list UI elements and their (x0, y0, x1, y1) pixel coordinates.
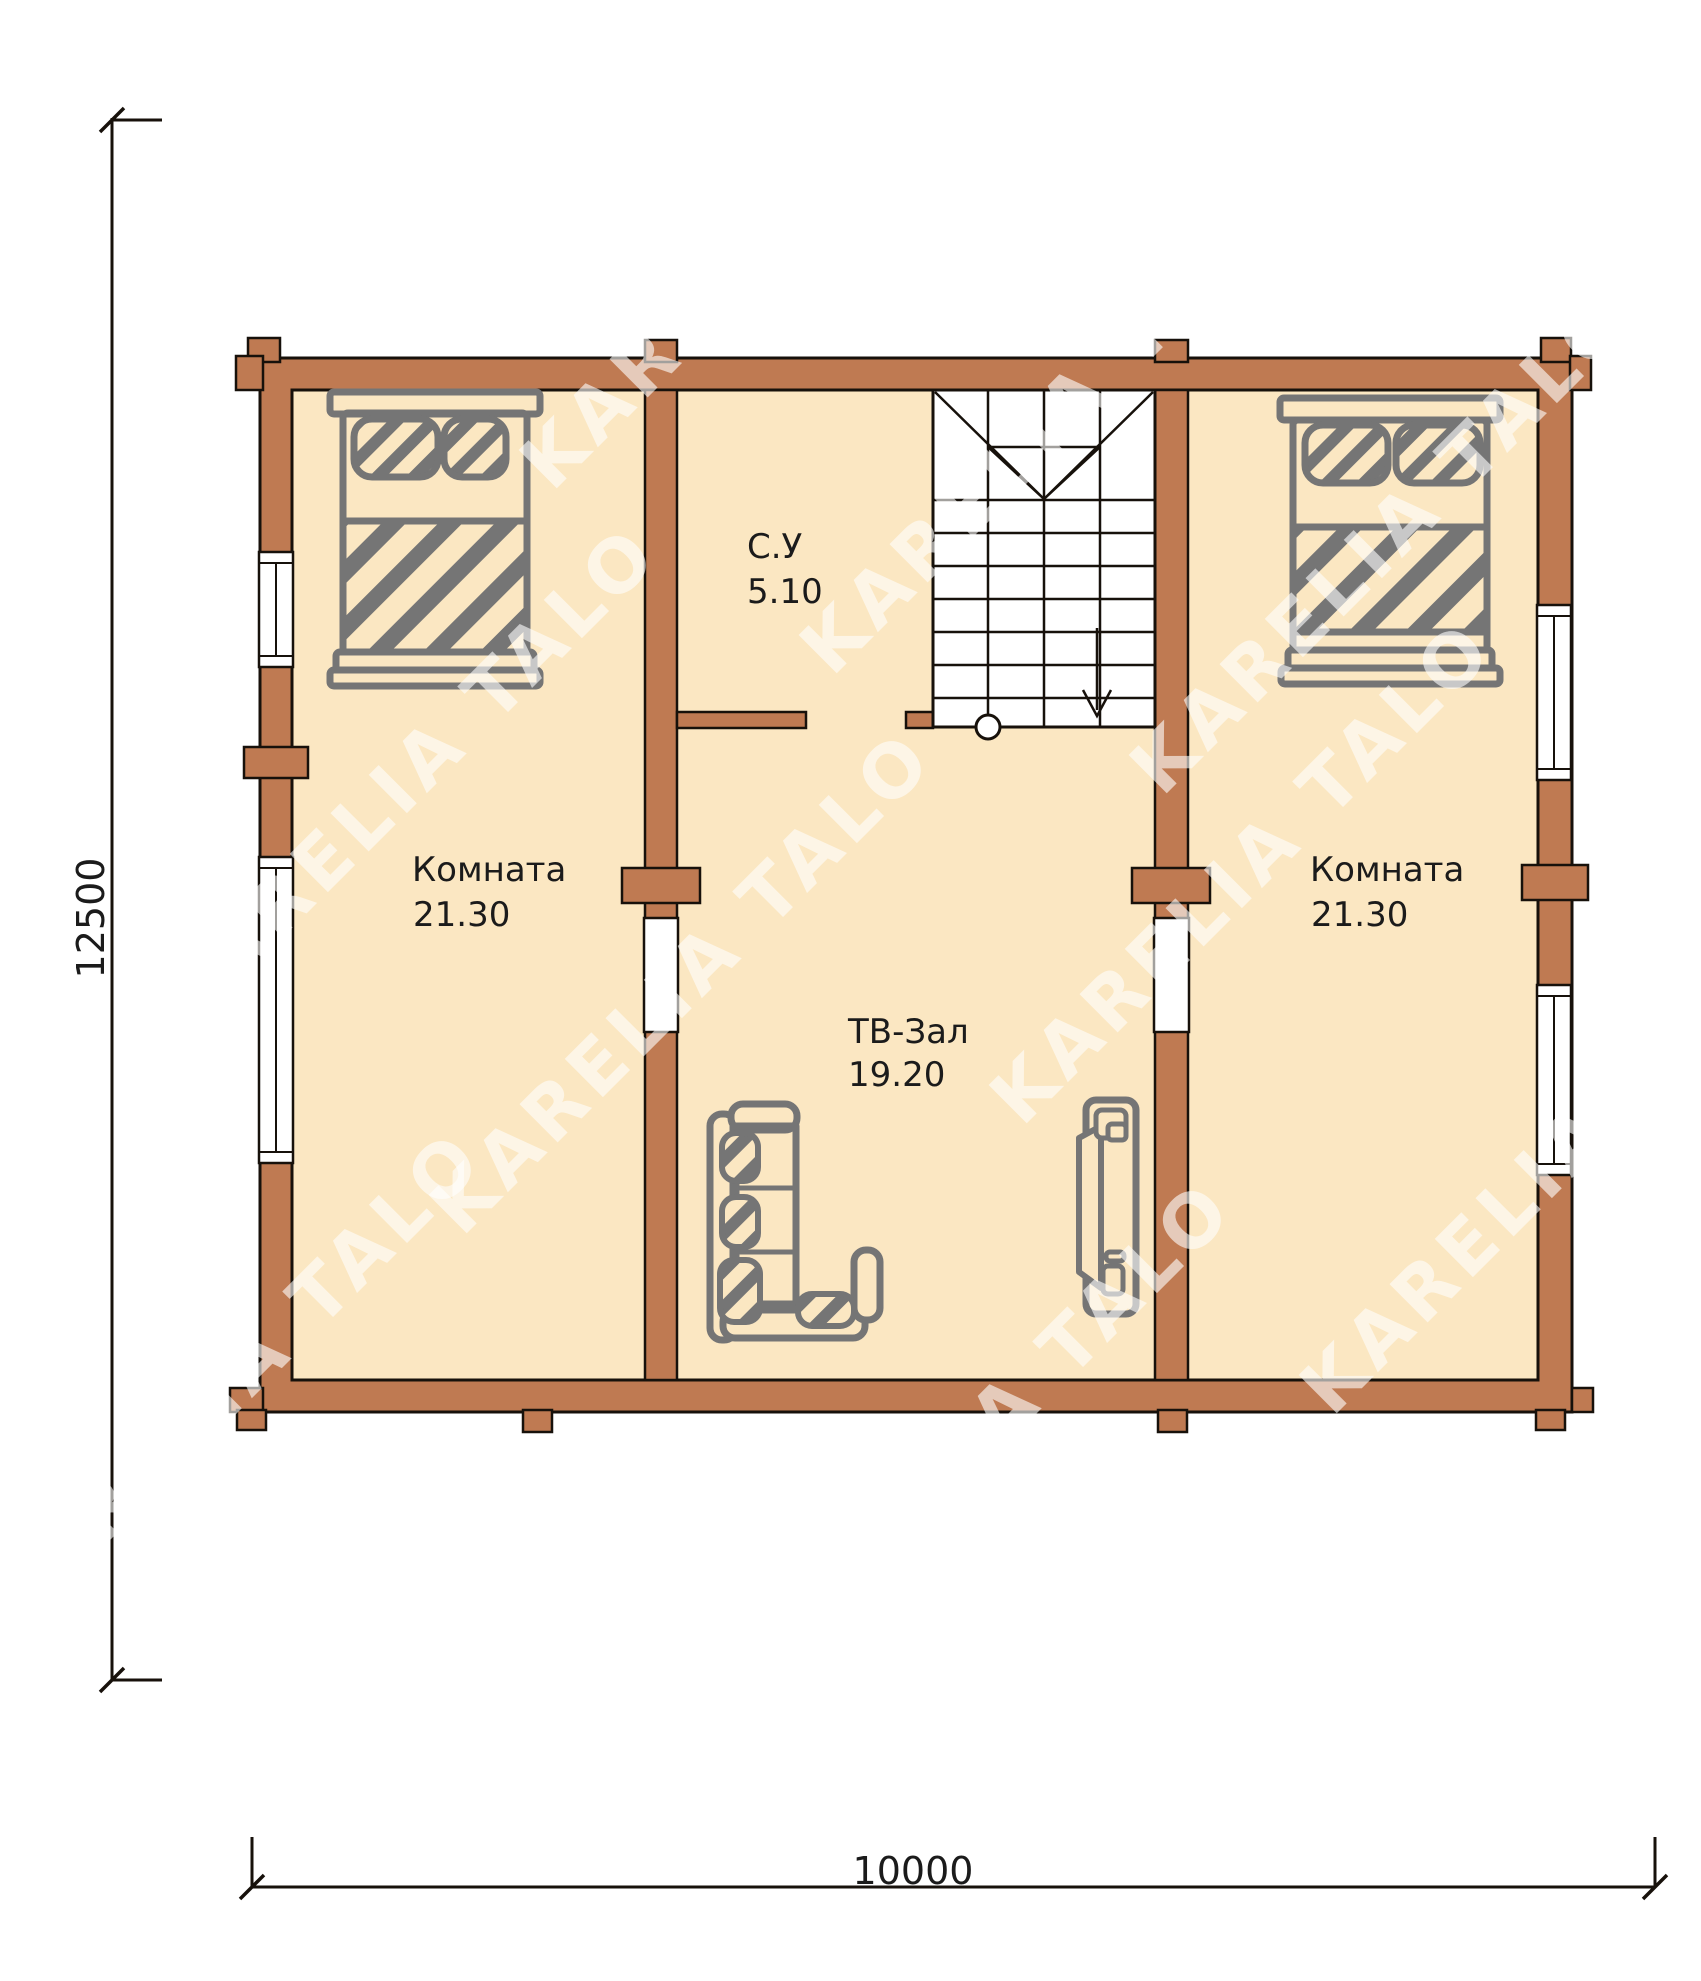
tv-hall-name: ТВ-Зал (847, 1012, 969, 1052)
tv-hall-area: 19.20 (848, 1055, 945, 1095)
floor-plan-page: Комната 21.30 Комната 21.30 С.У 5.10 ТВ-… (0, 0, 1701, 1981)
left-bedroom-name: Комната (412, 850, 566, 890)
dimension-width-value: 10000 (853, 1849, 974, 1893)
bathroom-partition (677, 712, 806, 728)
bathroom-name: С.У (747, 527, 803, 567)
right-bedroom-area: 21.30 (1311, 895, 1408, 935)
right-bedroom-name: Комната (1310, 850, 1464, 890)
horizontal-dimension: 10000 (240, 1837, 1667, 1899)
window-left-upper (259, 552, 293, 667)
stair-newel-post (976, 715, 1000, 739)
window-right-upper (1537, 605, 1571, 780)
left-bedroom-area: 21.30 (413, 895, 510, 935)
floor-plan-drawing: Комната 21.30 Комната 21.30 С.У 5.10 ТВ-… (0, 0, 1701, 1981)
dimension-height-value: 12500 (69, 858, 113, 979)
